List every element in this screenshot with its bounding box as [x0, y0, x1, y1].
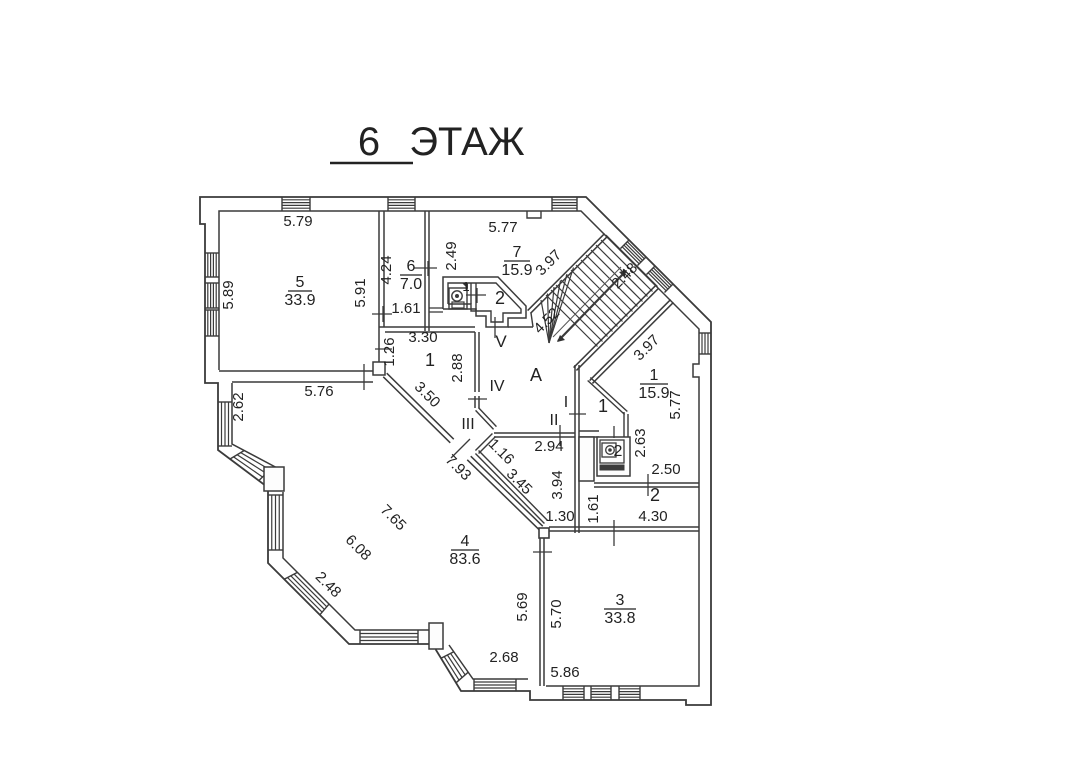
svg-text:V: V	[495, 332, 507, 351]
svg-text:III: III	[461, 416, 474, 433]
svg-text:2: 2	[495, 288, 505, 308]
svg-text:4.30: 4.30	[638, 508, 667, 525]
svg-text:1.61: 1.61	[585, 494, 602, 523]
svg-text:4: 4	[461, 533, 470, 550]
svg-text:5: 5	[296, 274, 305, 291]
svg-text:33.8: 33.8	[604, 610, 635, 627]
svg-text:5.79: 5.79	[283, 213, 312, 230]
svg-text:6: 6	[358, 120, 380, 164]
svg-text:2.62: 2.62	[230, 392, 247, 421]
svg-text:5.77: 5.77	[488, 219, 517, 236]
svg-text:2: 2	[614, 443, 623, 460]
svg-text:4.24: 4.24	[378, 255, 395, 284]
svg-text:1.61: 1.61	[391, 300, 420, 317]
svg-text:15.9: 15.9	[638, 385, 669, 402]
svg-text:5.91: 5.91	[352, 278, 369, 307]
svg-text:2.88: 2.88	[449, 353, 466, 382]
svg-text:15.9: 15.9	[501, 262, 532, 279]
svg-text:A: A	[530, 365, 542, 385]
svg-text:1: 1	[425, 350, 435, 370]
svg-text:1: 1	[650, 367, 659, 384]
svg-text:2.50: 2.50	[651, 461, 680, 478]
svg-text:83.6: 83.6	[449, 551, 480, 568]
svg-text:3.94: 3.94	[549, 470, 566, 499]
svg-text:5.77: 5.77	[667, 390, 684, 419]
svg-text:II: II	[550, 412, 559, 429]
svg-text:2.49: 2.49	[443, 241, 460, 270]
svg-text:IV: IV	[489, 378, 504, 395]
svg-text:5.70: 5.70	[548, 599, 565, 628]
svg-text:I: I	[564, 394, 568, 411]
svg-text:6: 6	[407, 258, 416, 275]
svg-text:5.86: 5.86	[550, 664, 579, 681]
svg-text:33.9: 33.9	[284, 292, 315, 309]
svg-text:2.63: 2.63	[632, 428, 649, 457]
svg-text:1: 1	[462, 279, 469, 294]
svg-text:2.68: 2.68	[489, 649, 518, 666]
svg-text:1.26: 1.26	[381, 337, 398, 366]
svg-text:5.69: 5.69	[514, 592, 531, 621]
svg-text:2.94: 2.94	[534, 438, 563, 455]
svg-text:1.30: 1.30	[545, 508, 574, 525]
svg-text:2: 2	[650, 485, 660, 505]
svg-text:3.30: 3.30	[408, 329, 437, 346]
svg-text:5.76: 5.76	[304, 383, 333, 400]
svg-text:ЭТАЖ: ЭТАЖ	[409, 120, 525, 164]
svg-text:7.0: 7.0	[400, 276, 422, 293]
svg-text:7: 7	[513, 244, 522, 261]
svg-text:3: 3	[616, 592, 625, 609]
svg-text:5.89: 5.89	[220, 280, 237, 309]
svg-text:1: 1	[598, 396, 608, 416]
